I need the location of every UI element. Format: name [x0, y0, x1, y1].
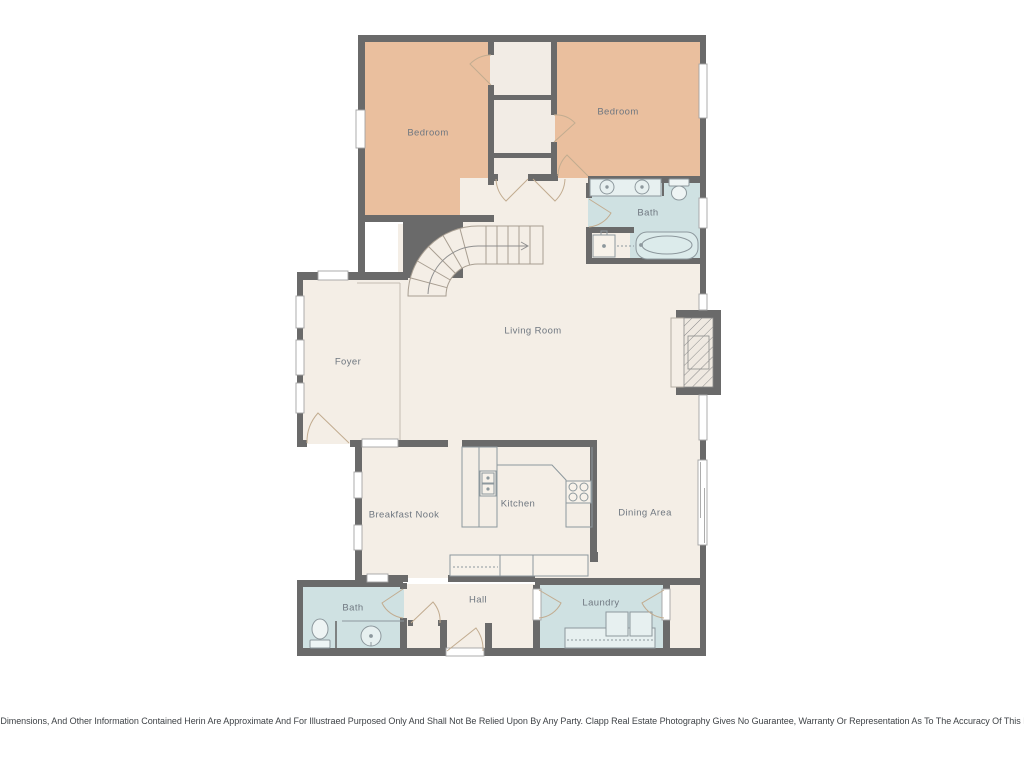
- entry-door-panel: [446, 648, 484, 656]
- room-closet-column: [490, 40, 555, 180]
- fireplace-surround: [713, 310, 721, 395]
- window: [354, 472, 362, 498]
- room-label-bath-upper: Bath: [637, 208, 658, 219]
- window: [362, 439, 398, 447]
- window: [699, 395, 707, 440]
- room-label-laundry: Laundry: [582, 598, 619, 609]
- window: [699, 294, 707, 310]
- room-label-bath-lower: Bath: [342, 603, 363, 614]
- room-label-dining-area: Dining Area: [618, 508, 672, 519]
- room-label-living-room: Living Room: [504, 326, 561, 337]
- washer: [606, 612, 628, 636]
- window: [356, 110, 365, 148]
- floor-plan-drawing: [0, 0, 1024, 768]
- room-closet-br: [667, 582, 703, 650]
- window: [318, 271, 348, 280]
- window: [296, 340, 304, 375]
- toilet-tank: [669, 179, 689, 186]
- door-frame: [662, 589, 670, 620]
- dryer: [630, 612, 652, 636]
- window: [699, 198, 707, 228]
- toilet-bowl: [312, 619, 328, 639]
- window: [354, 525, 362, 550]
- room-label-kitchen: Kitchen: [501, 499, 536, 510]
- room-label-foyer: Foyer: [335, 357, 361, 368]
- toilet-bowl: [672, 186, 687, 200]
- kitchen-island: [450, 555, 588, 576]
- door-frame: [533, 589, 541, 620]
- sliding-door: [698, 460, 707, 545]
- window: [296, 296, 304, 328]
- window: [367, 574, 388, 582]
- room-label-hall: Hall: [469, 595, 487, 606]
- room-label-bedroom-right: Bedroom: [597, 107, 638, 118]
- disclaimer-text: All Images, Dimensions, And Other Inform…: [0, 716, 1024, 726]
- vanity-counter: [590, 179, 661, 196]
- room-label-bedroom-left: Bedroom: [407, 128, 448, 139]
- window: [699, 64, 707, 118]
- floor-plan-canvas: Bedroom Bedroom Bath Living Room Foyer B…: [0, 0, 1024, 768]
- window: [296, 383, 304, 413]
- room-landing: [460, 178, 590, 230]
- room-label-breakfast-nook: Breakfast Nook: [369, 510, 440, 521]
- toilet-tank: [310, 640, 330, 648]
- closet-fills: [490, 40, 555, 180]
